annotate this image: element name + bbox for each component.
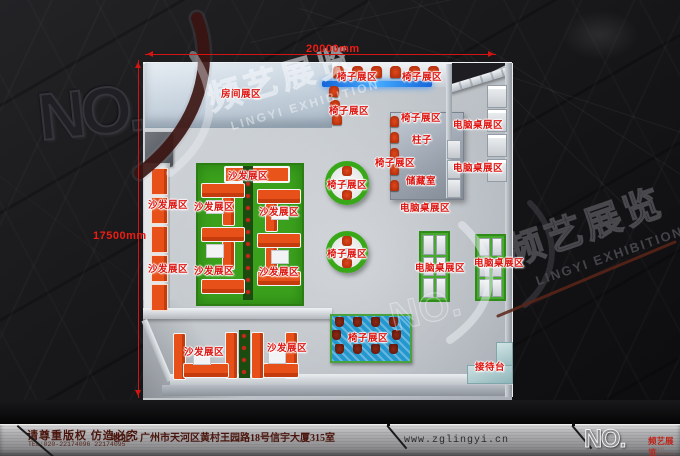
area-label: 电脑桌展区	[474, 255, 524, 269]
area-label: 电脑桌展区	[453, 117, 503, 131]
area-label: 椅子展区	[375, 155, 415, 169]
computer-desk	[479, 238, 490, 256]
area-label: 椅子展区	[337, 69, 377, 83]
chair	[353, 317, 362, 327]
sofa	[257, 233, 301, 248]
area-label: 椅子展区	[329, 103, 369, 117]
footer-dark-strip	[0, 400, 680, 424]
area-label: 椅子展区	[401, 110, 441, 124]
plant-row	[239, 330, 250, 378]
chair	[390, 132, 399, 143]
area-label: 电脑桌展区	[400, 200, 450, 214]
chair	[371, 317, 380, 327]
chair	[342, 190, 352, 200]
chair	[353, 344, 362, 354]
wall-block	[145, 132, 173, 167]
sofa	[183, 363, 229, 378]
chair	[390, 66, 401, 78]
area-label: 椅子展区	[402, 69, 442, 83]
computer-desk	[447, 140, 461, 159]
computer-desk	[492, 279, 503, 297]
background-glow	[545, 0, 655, 70]
computer-desk	[447, 179, 461, 198]
area-label: 沙发展区	[259, 204, 299, 218]
footer-line-dot	[387, 423, 390, 426]
area-label: 沙发展区	[228, 168, 268, 182]
computer-desk	[487, 134, 507, 157]
computer-desk	[436, 235, 447, 255]
area-label: 沙发展区	[259, 264, 299, 278]
chair	[332, 330, 341, 340]
area-label: 柱子	[412, 132, 432, 146]
area-label: 沙发展区	[148, 261, 188, 275]
sofa	[201, 279, 245, 294]
computer-desk	[492, 238, 503, 256]
area-label: 椅子展区	[327, 177, 367, 191]
dimension-left-label: 17500mm	[93, 230, 147, 242]
footer-line-dot	[572, 423, 575, 426]
chair	[390, 116, 399, 127]
area-label: 电脑桌展区	[453, 160, 503, 174]
chair	[371, 344, 380, 354]
dimension-top-label: 20000mm	[306, 43, 360, 55]
partition-wall	[143, 308, 332, 319]
computer-desk	[479, 279, 490, 297]
coffee-table	[206, 244, 224, 258]
computer-desk	[487, 85, 507, 108]
chair	[335, 344, 344, 354]
website-url[interactable]: www.zglingyi.cn	[404, 435, 509, 446]
chair	[389, 344, 398, 354]
sofa	[201, 227, 245, 242]
chair	[390, 180, 399, 191]
footer-logo-en-text: LINGYI EXHIBITION	[649, 446, 680, 456]
sofa	[257, 189, 301, 204]
area-label: 接待台	[475, 359, 505, 373]
chair	[335, 317, 344, 327]
sofa	[151, 284, 168, 311]
area-label: 沙发展区	[194, 263, 234, 277]
coffee-table	[271, 250, 289, 264]
computer-desk	[423, 235, 434, 255]
area-label: 沙发展区	[194, 199, 234, 213]
sofa	[151, 168, 168, 195]
area-label: 电脑桌展区	[415, 260, 465, 274]
area-label: 沙发展区	[267, 340, 307, 354]
address-text: 地址：广州市天河区黄村王园路18号信宇大厦315室	[110, 429, 335, 444]
area-label: 房间展区	[221, 86, 261, 100]
sofa	[263, 363, 299, 378]
sofa	[201, 183, 245, 198]
area-label: 沙发展区	[184, 344, 224, 358]
footer-no1-logo: NO.	[584, 425, 625, 454]
watermark-no1-logo-topleft: NO.	[34, 69, 144, 155]
dimension-line-left	[138, 60, 139, 398]
outer-bottom-edge	[162, 385, 512, 396]
area-label: 椅子展区	[327, 246, 367, 260]
area-label: 储藏室	[406, 173, 436, 187]
sofa	[151, 226, 168, 253]
poster-canvas: NO. 频艺展览 LINGYI EXHIBITION 频艺展览 LINGYI E…	[0, 0, 680, 456]
area-label: 椅子展区	[348, 330, 388, 344]
chair	[342, 166, 352, 176]
area-label: 沙发展区	[148, 197, 188, 211]
chair	[342, 236, 352, 246]
